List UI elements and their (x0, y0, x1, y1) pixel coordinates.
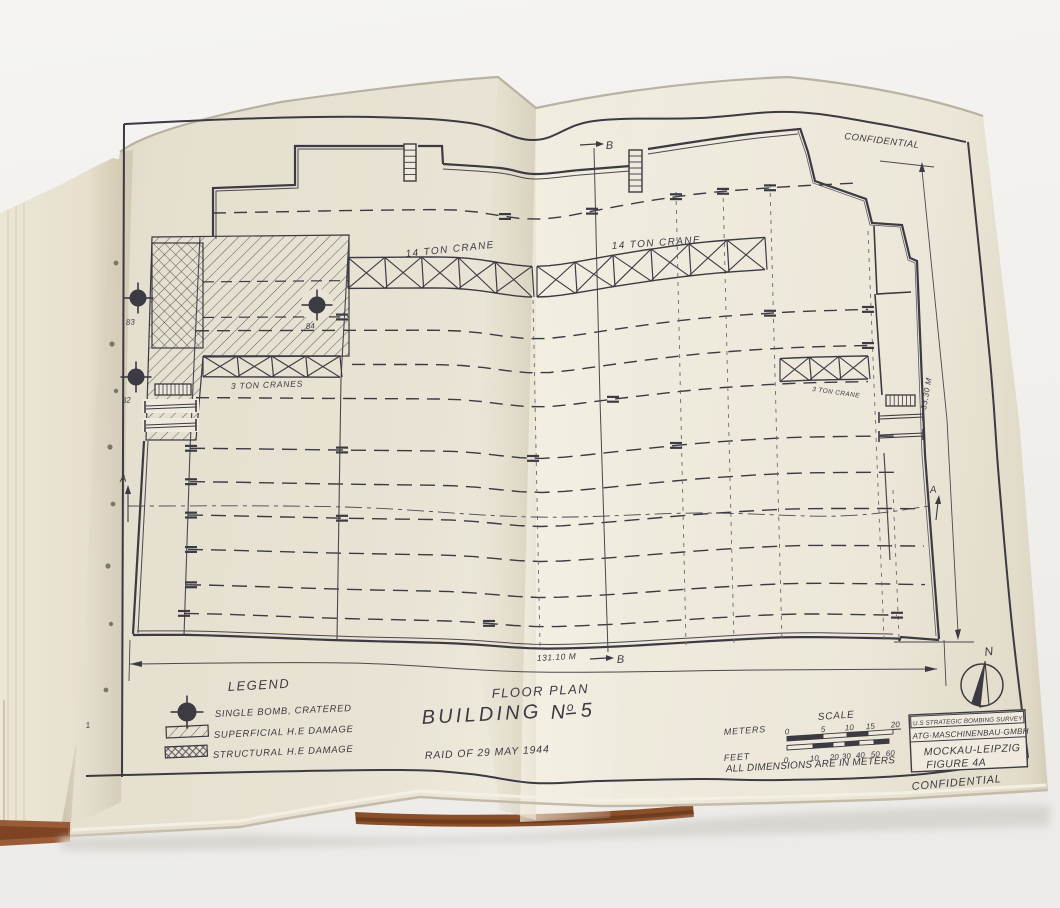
svg-text:o: o (566, 700, 574, 714)
svg-text:131.10 M: 131.10 M (537, 651, 577, 663)
svg-text:B: B (606, 140, 614, 152)
svg-text:10: 10 (845, 723, 855, 733)
svg-text:20: 20 (890, 720, 901, 730)
svg-text:FEET: FEET (723, 751, 751, 763)
svg-text:82: 82 (122, 395, 132, 405)
svg-text:5: 5 (580, 699, 593, 722)
svg-text:A: A (118, 474, 127, 486)
svg-text:84: 84 (306, 321, 316, 331)
svg-text:83: 83 (126, 317, 136, 327)
svg-text:A: A (928, 485, 937, 497)
svg-text:15: 15 (866, 722, 876, 732)
svg-text:B: B (617, 654, 625, 666)
svg-text:N: N (550, 701, 566, 724)
